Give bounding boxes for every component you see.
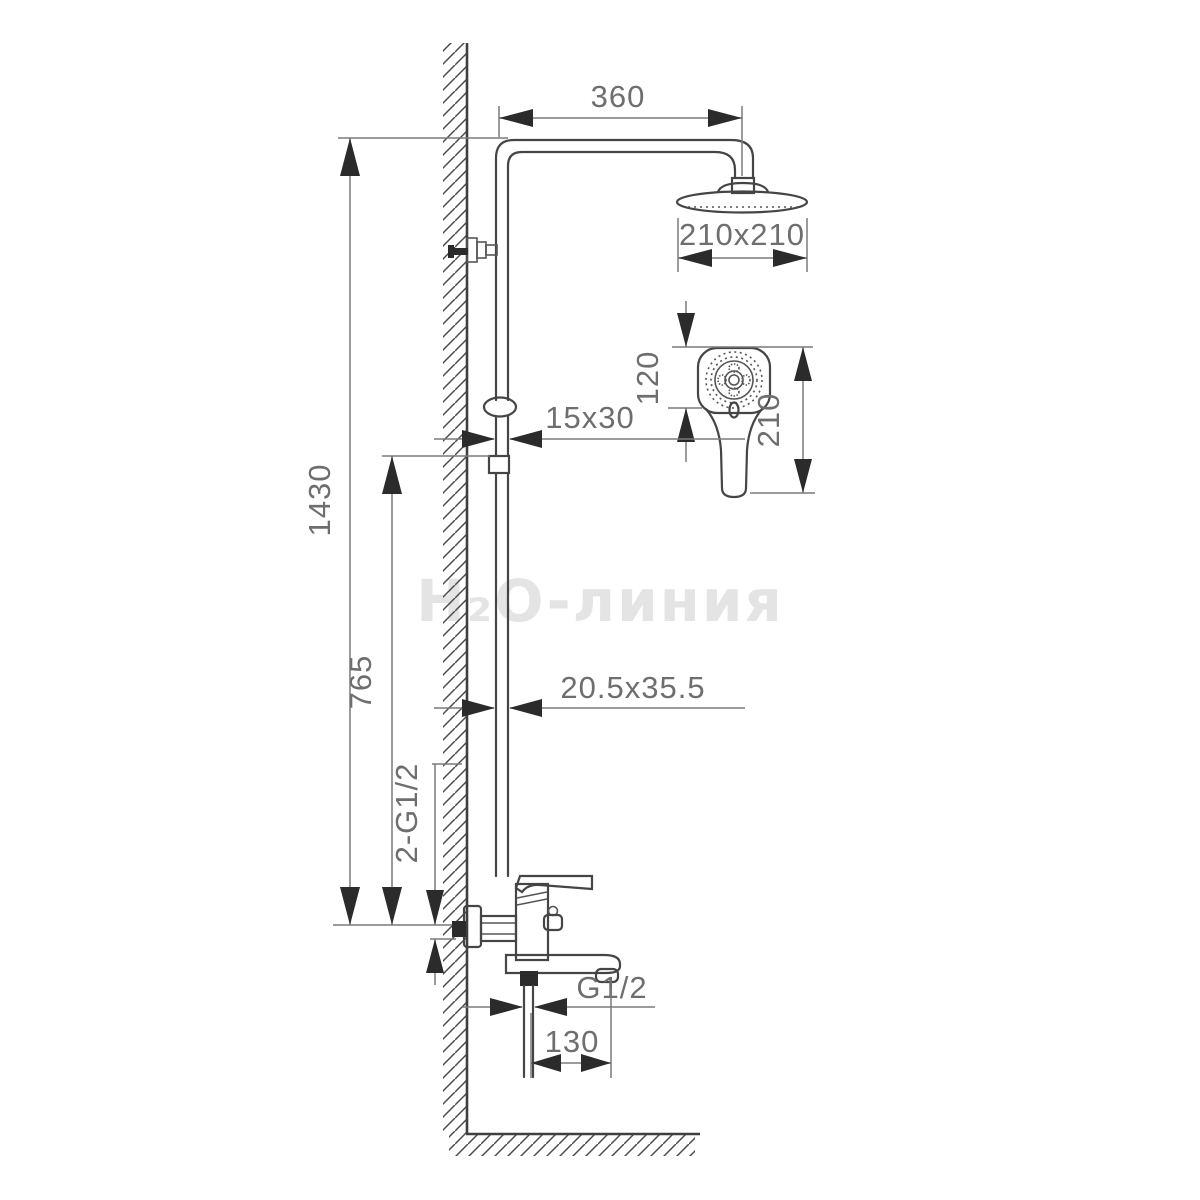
dim-label-1430: 1430 [302,464,337,537]
dimension-arm-reach: 360 [499,79,742,176]
handshower-holder [484,398,516,417]
dimension-head-size: 210x210 [678,217,807,272]
dim-label-765: 765 [343,655,378,710]
diagram-canvas: H₂O-линия [0,0,1200,1200]
wall-hatching [443,43,467,1134]
floor [449,1134,700,1156]
watermark-text: H₂O-линия [416,567,783,635]
eccentric-connector [452,921,466,937]
dim-label-G1/2: G1/2 [576,970,647,1005]
floor-hatching [449,1134,695,1156]
dimension-spout-thread: G1/2 [462,970,655,1016]
diverter-knob [544,915,562,930]
dimension-handshower-length: 210 [750,347,815,493]
wall-union-nut [481,916,516,941]
column-connector [489,456,509,473]
lower-connector [520,971,538,986]
overhead-shower-head [677,178,807,213]
shower-system-drawing: H₂O-линия [0,0,1200,1200]
head-disc [677,192,807,213]
dim-label-20.5x35.5: 20.5x35.5 [560,670,705,705]
dimension-slider-section: 15x30 [434,400,745,448]
dim-label-130: 130 [545,1024,600,1059]
dim-label-210: 210 [751,393,786,448]
handshower-center [725,371,743,389]
mixer-cartridge [517,892,547,905]
dim-label-210x210: 210x210 [679,217,805,252]
dim-label-120: 120 [630,351,665,406]
shower-arm-inner [508,152,735,400]
dim-label-15x30: 15x30 [545,400,634,435]
bracket-screw [452,248,468,255]
dimension-column-section: 20.5x35.5 [434,670,745,717]
dim-label-2-G1/2: 2-G1/2 [389,763,424,864]
shower-arm-outer [496,140,753,400]
handshower-button [730,403,739,418]
bracket-screw-head [448,245,454,258]
dim-label-360: 360 [591,79,646,114]
handshower-ring [715,361,753,399]
wall [443,43,467,1134]
